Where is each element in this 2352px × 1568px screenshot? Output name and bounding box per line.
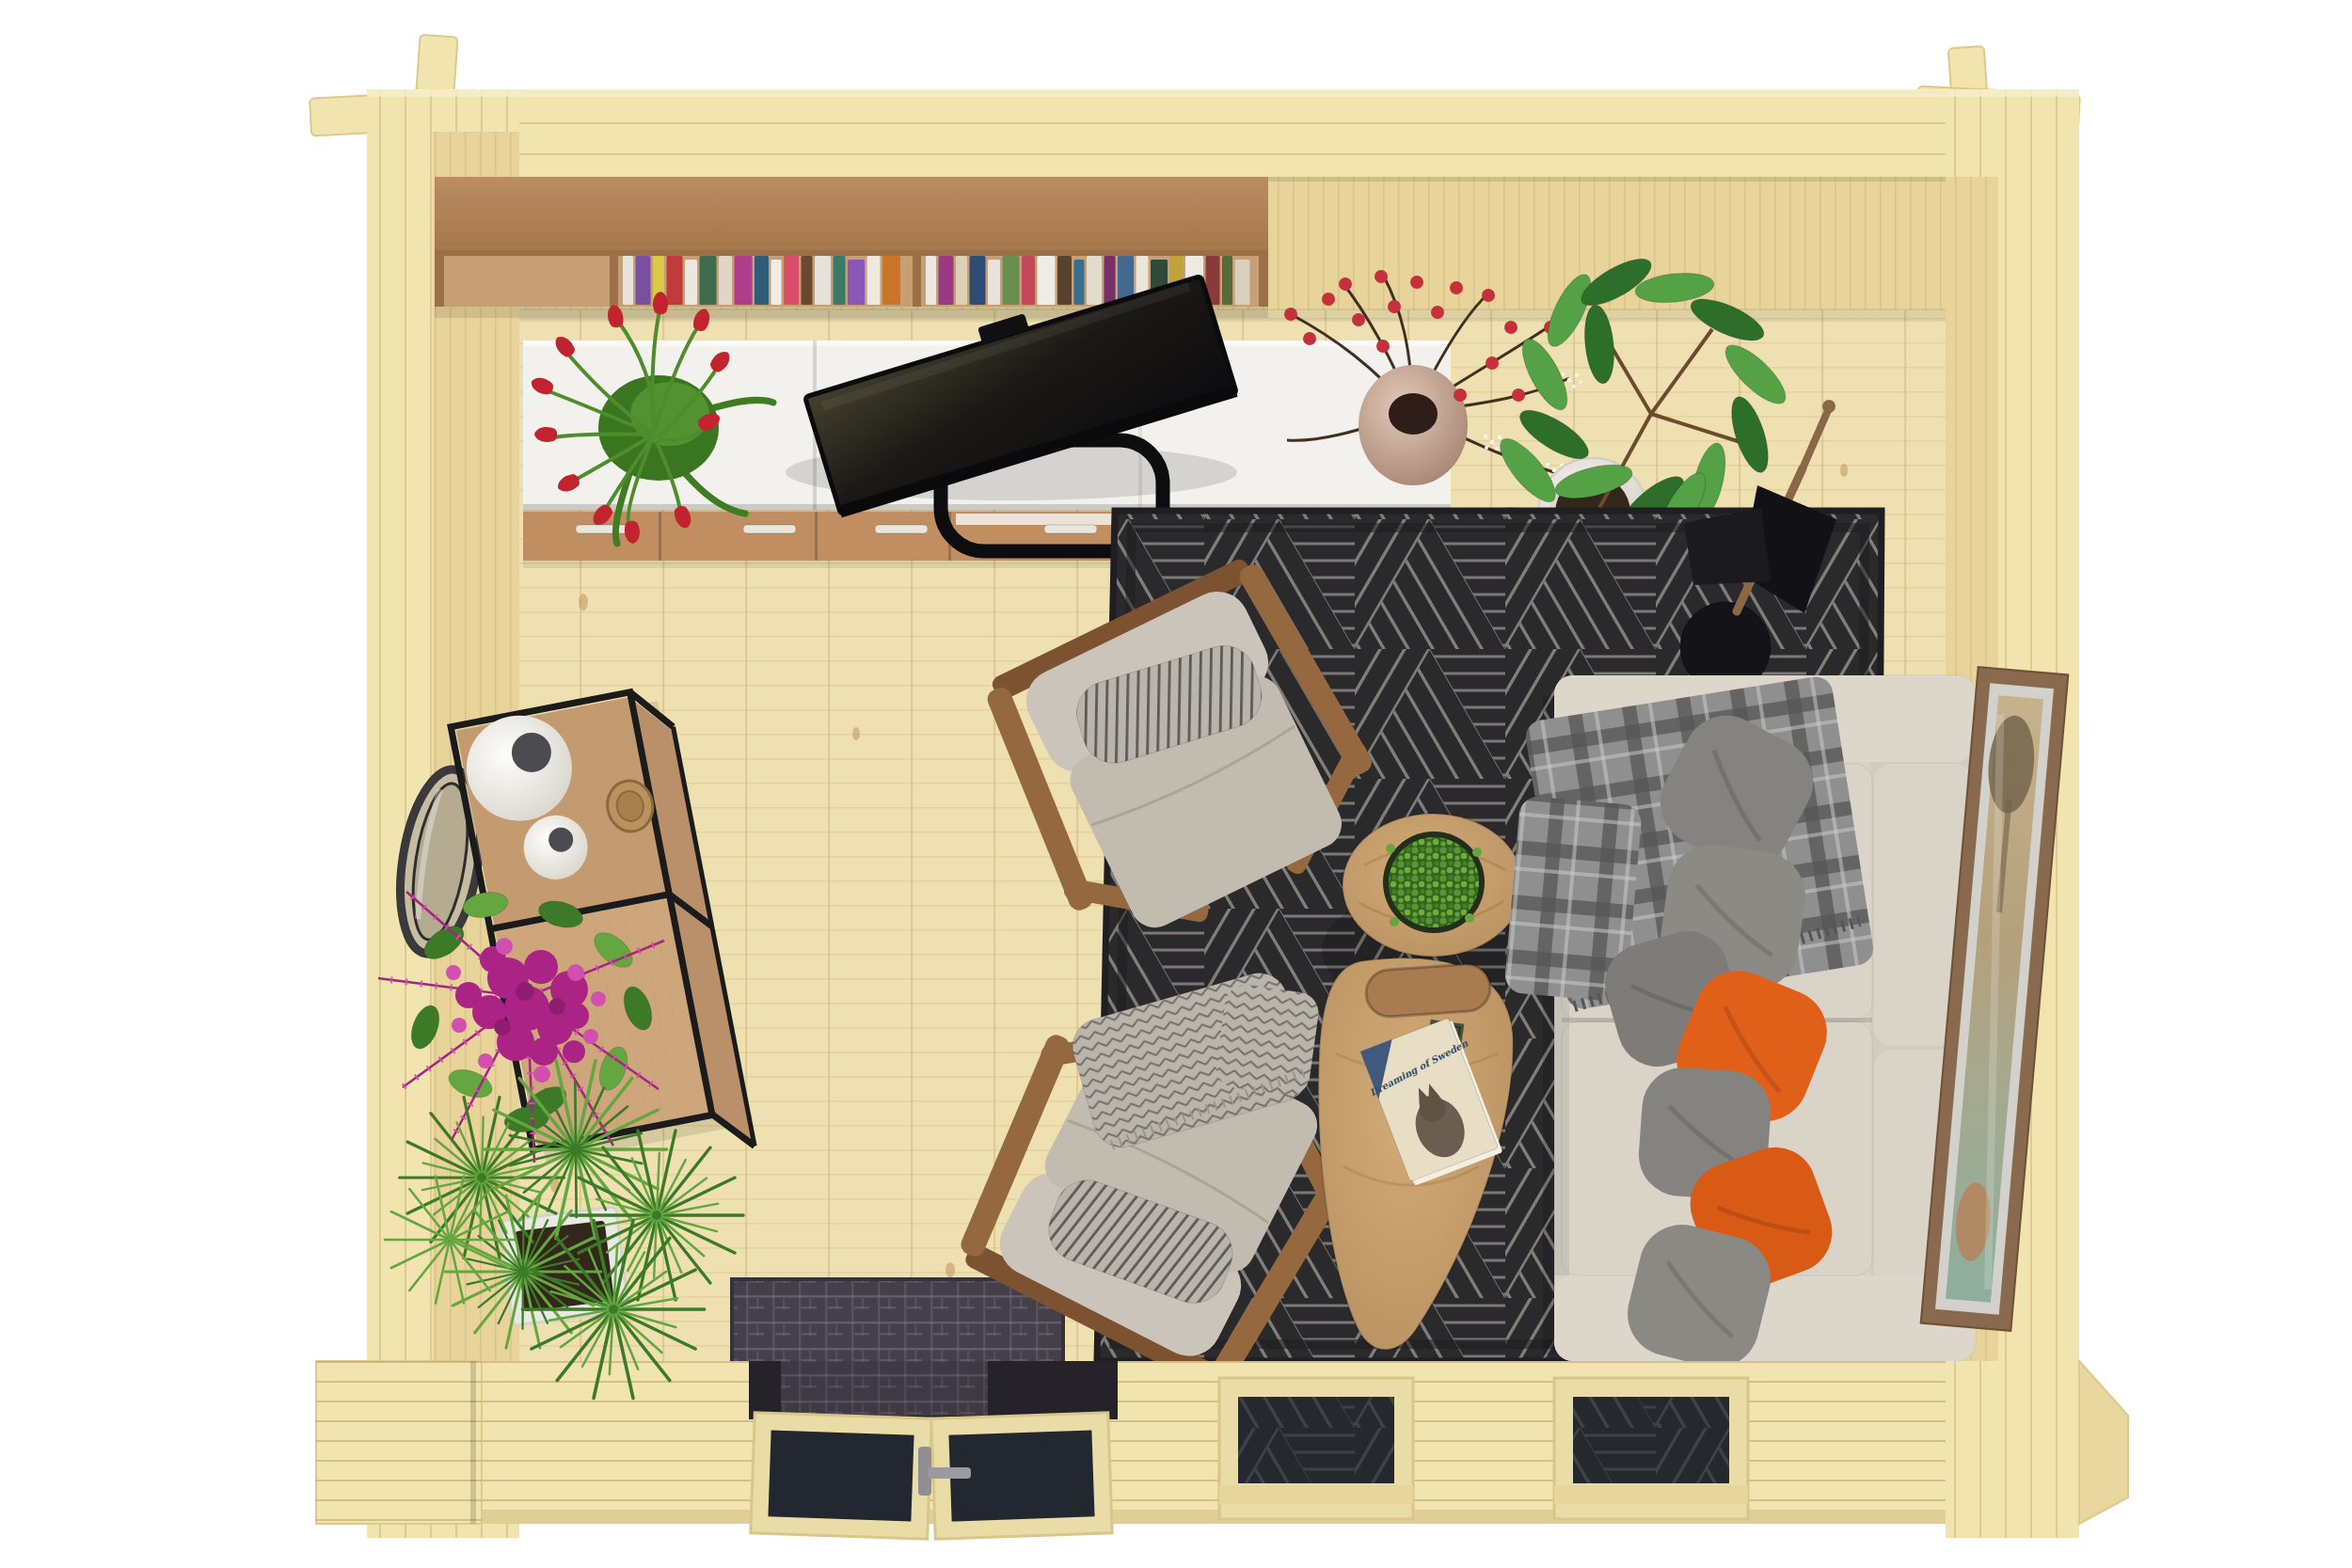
book-spine (1074, 260, 1085, 305)
book-spine (1057, 256, 1072, 305)
book-spine (719, 256, 732, 305)
book-spine (784, 256, 799, 305)
doormat (732, 1279, 1063, 1373)
book-spine (636, 256, 651, 305)
book-spine (623, 256, 633, 305)
book-spine (755, 256, 769, 305)
log-corner-left (316, 1361, 482, 1524)
scene: Dreaming of Sweden (0, 0, 2352, 1568)
render-canvas: Dreaming of Sweden (0, 0, 2352, 1568)
book-spine (700, 256, 717, 305)
book-spine (771, 260, 782, 305)
book-spine (815, 256, 831, 305)
book-spine (1087, 256, 1102, 305)
book-spine (834, 256, 846, 305)
window-right (1554, 1378, 1748, 1519)
book-spine (926, 256, 936, 305)
book-spine (802, 256, 813, 305)
boxwood-plant (1389, 837, 1479, 927)
book-spine (882, 256, 900, 305)
door-leaf-left (751, 1413, 931, 1539)
book-spine (1003, 256, 1020, 305)
book-spine (735, 256, 753, 305)
book-spine (1022, 256, 1035, 305)
book-spine (1235, 260, 1250, 305)
log-corner-right (1946, 1361, 2128, 1524)
book-spine (848, 260, 865, 305)
window-left (1219, 1378, 1413, 1519)
book-spine (867, 256, 881, 305)
book-spine (1222, 256, 1232, 305)
book-spine (970, 256, 986, 305)
book-spine (667, 256, 683, 305)
wall-bottom (316, 1361, 2128, 1539)
book-spine (1038, 256, 1056, 305)
side-table-round (1343, 814, 1523, 957)
book-spine (939, 256, 954, 305)
table-handle-cutout (1364, 962, 1491, 1018)
book-spine (1104, 256, 1116, 305)
book-spine (988, 260, 1000, 305)
book-spine (956, 256, 967, 305)
door (749, 1361, 1118, 1539)
book-spine (685, 260, 697, 305)
